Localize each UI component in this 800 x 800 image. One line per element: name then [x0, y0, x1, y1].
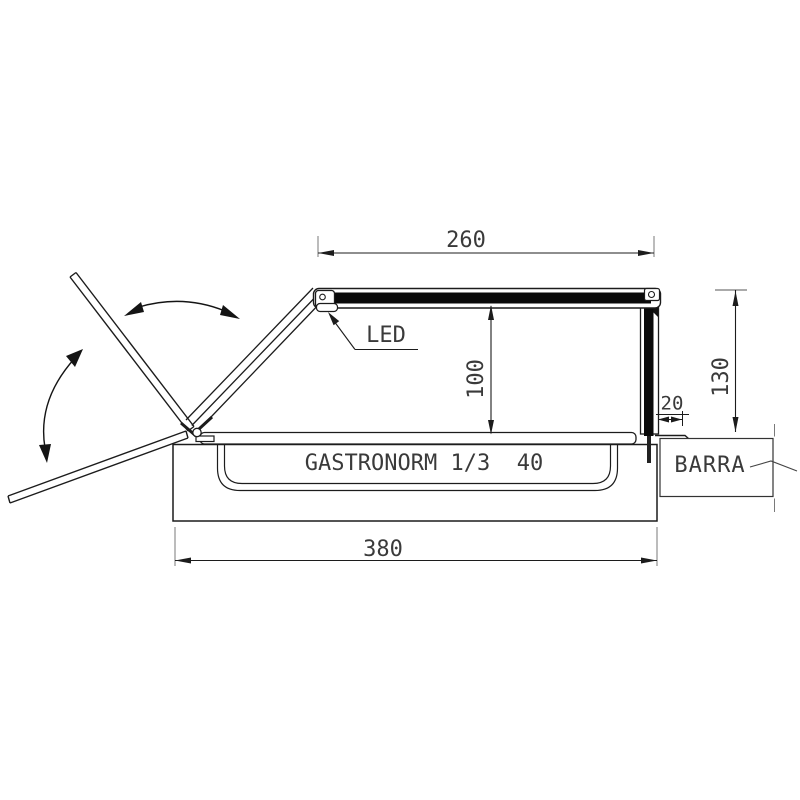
led-fixture-flange [317, 304, 338, 312]
dim-label-base-width: 380 [363, 539, 403, 561]
technical-drawing-canvas: 260 LED 100 130 20 GASTRONORM 1/3 40 BAR… [0, 0, 800, 800]
arrowhead [66, 349, 83, 367]
hinge [181, 417, 214, 442]
arrowhead [39, 444, 51, 463]
arrowhead [220, 305, 240, 319]
dim-label-bar-gap: 20 [661, 395, 684, 414]
rotation-arrow-left [39, 349, 83, 463]
dimension-260 [318, 236, 654, 257]
dimension-380 [175, 527, 657, 566]
tray-rim [200, 433, 636, 445]
front-glass-open-lowered [8, 431, 188, 503]
dim-label-right-height: 130 [711, 357, 733, 397]
rotation-arrow-top [124, 301, 240, 319]
dim-label-top-width: 260 [446, 230, 486, 252]
dim-label-glass-height: 100 [466, 359, 488, 399]
arrowhead [124, 302, 144, 316]
front-glass-open-steep [70, 273, 194, 432]
led-fixture-screw [320, 294, 326, 300]
corner-bracket-screw [649, 292, 655, 298]
barra-label: BARRA [674, 455, 745, 477]
right-glass-panel [641, 298, 659, 463]
top-glass-assembly [314, 289, 661, 312]
gastronorm-label: GASTRONORM 1/3 40 [305, 453, 543, 475]
front-glass-closed [186, 288, 323, 431]
led-label: LED [366, 325, 406, 347]
